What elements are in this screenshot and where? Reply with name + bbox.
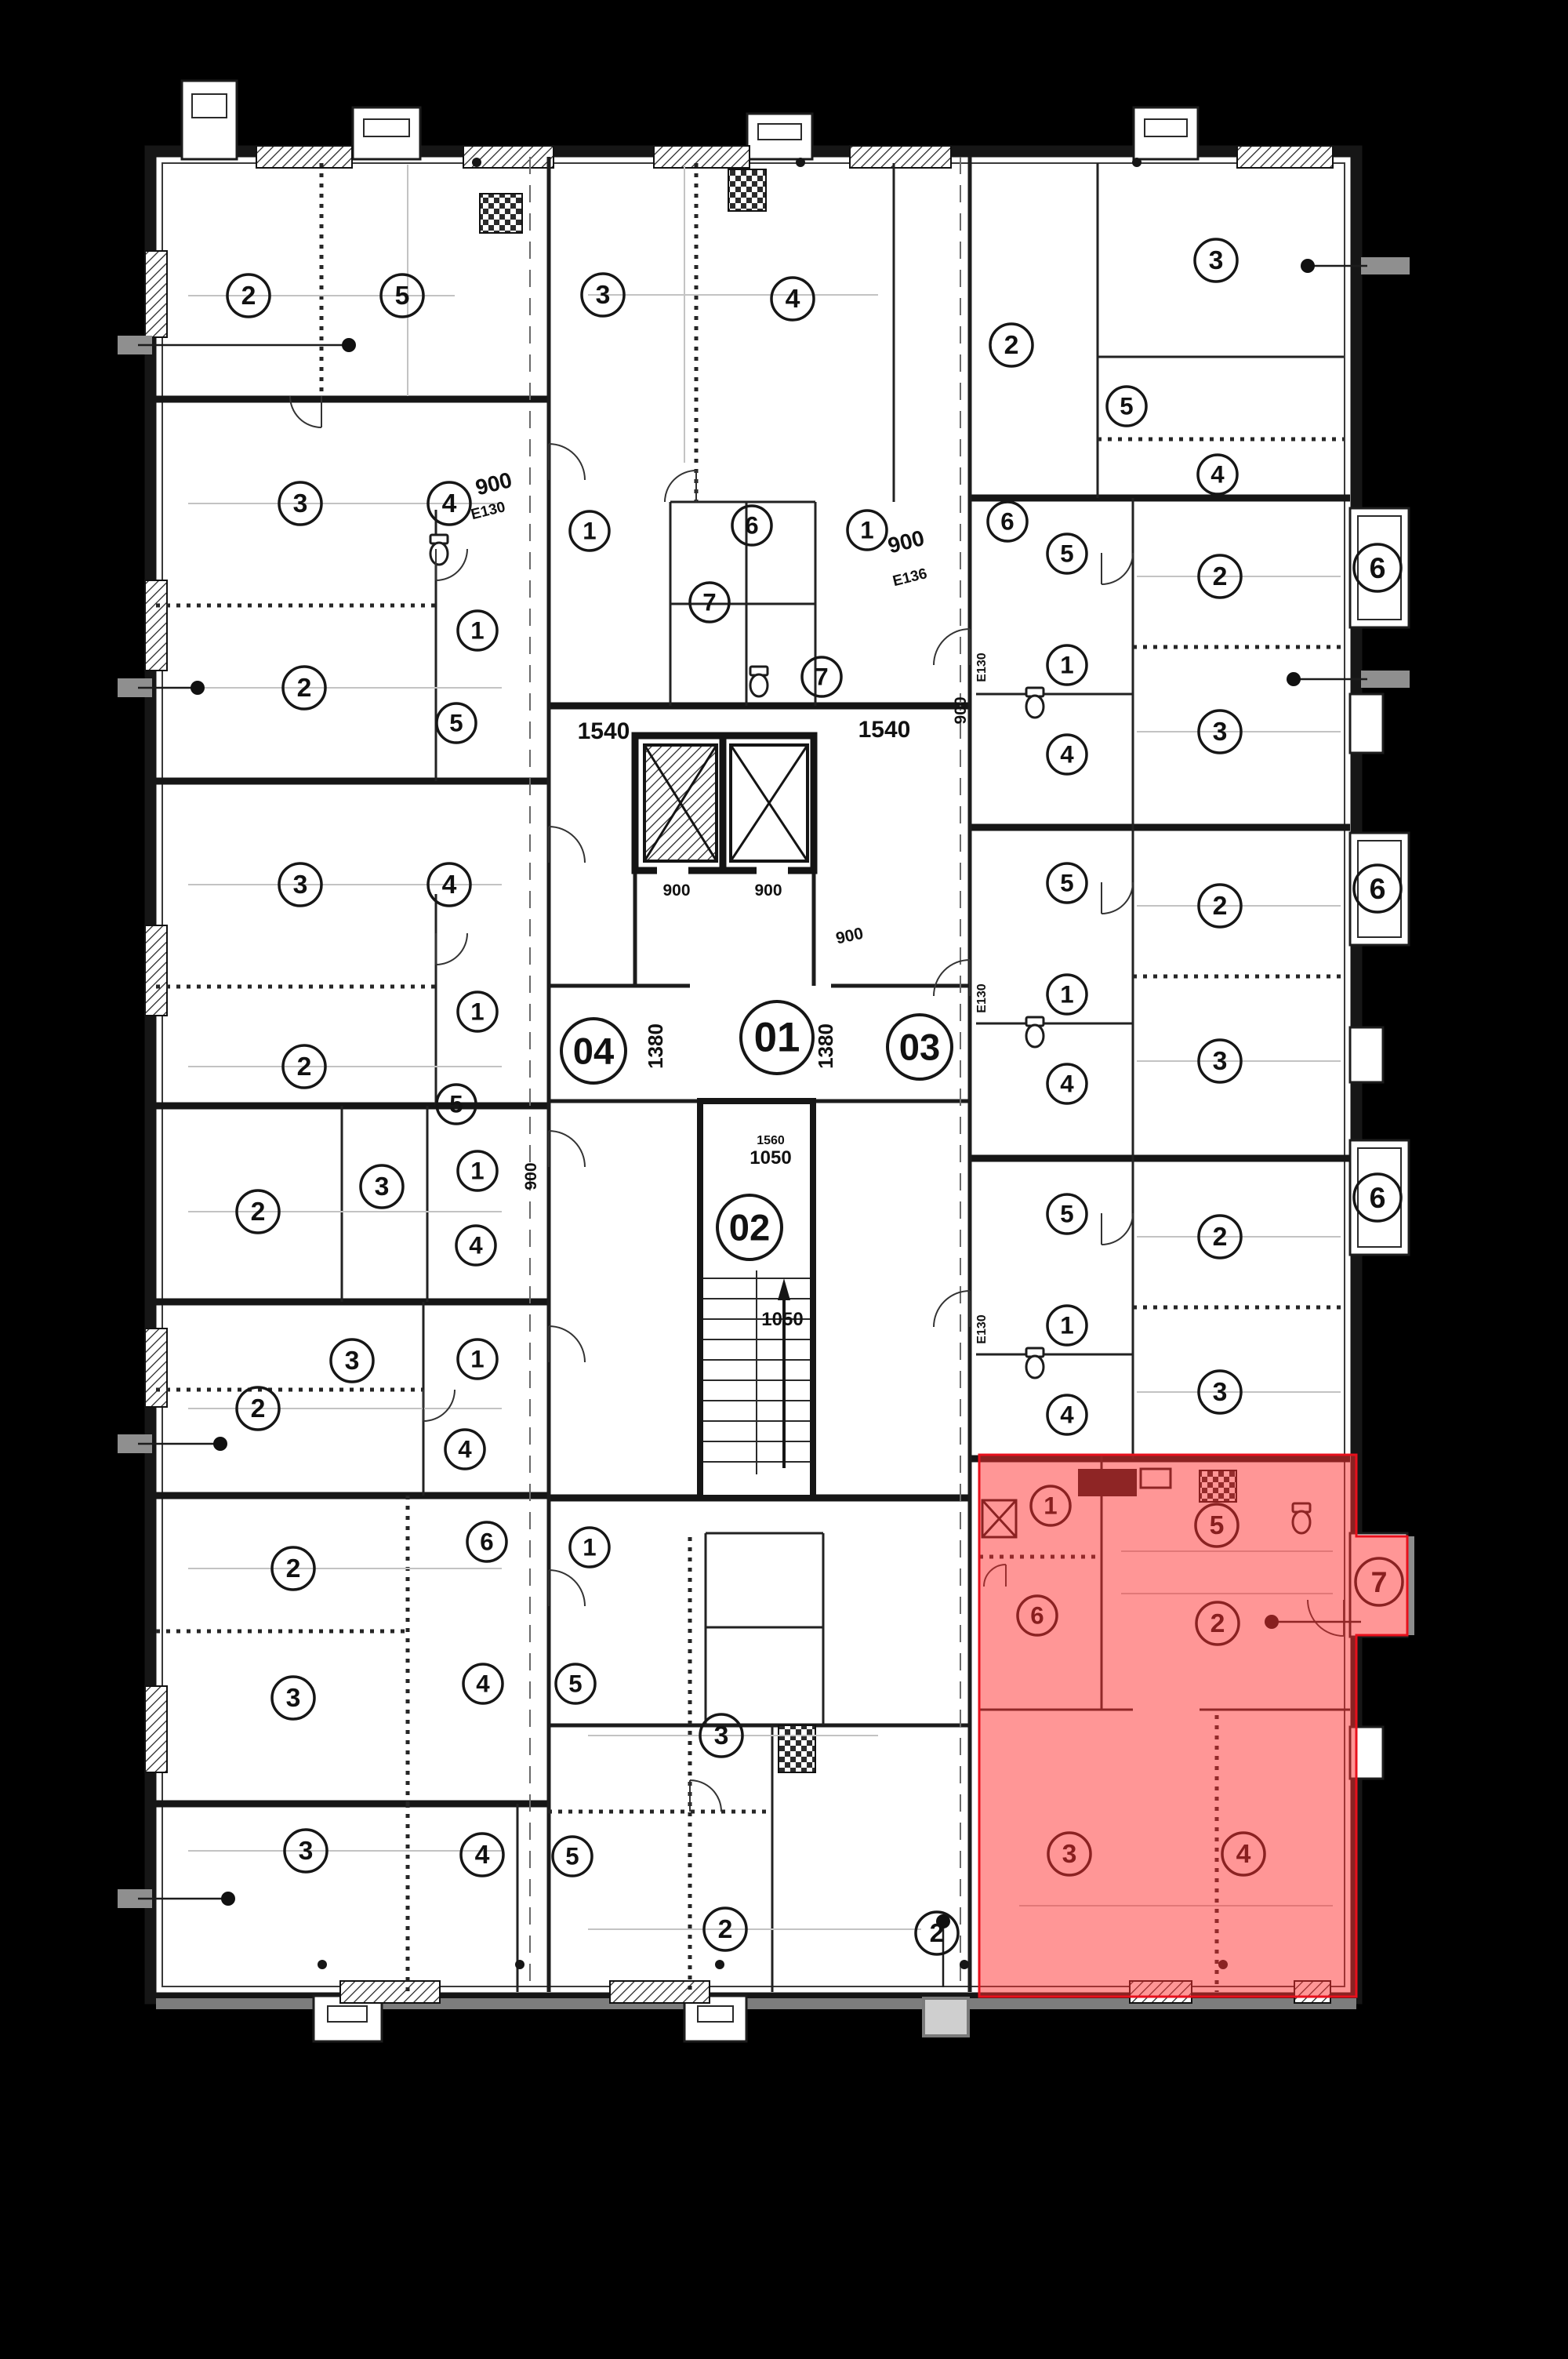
dimension-label: 900 (754, 881, 782, 900)
toilet-icon (1026, 1348, 1044, 1378)
svg-text:5: 5 (1060, 870, 1073, 897)
dimension-label: 1540 (858, 717, 911, 743)
svg-text:6: 6 (1000, 508, 1014, 536)
svg-text:6: 6 (1370, 1181, 1386, 1214)
dimension-label: E130 (975, 1314, 989, 1343)
svg-text:5: 5 (1060, 540, 1073, 568)
elevator-shaft-left (644, 745, 717, 861)
svg-text:1: 1 (860, 517, 873, 544)
svg-text:2: 2 (241, 281, 256, 311)
svg-text:1: 1 (583, 518, 596, 545)
svg-text:4: 4 (1060, 1401, 1074, 1429)
svg-text:2: 2 (251, 1394, 266, 1423)
dimension-label: 1540 (578, 718, 630, 744)
svg-text:5: 5 (395, 281, 410, 311)
svg-text:1: 1 (470, 1158, 484, 1185)
toilet-icon (1026, 688, 1044, 718)
toilet-icon (1026, 1017, 1044, 1047)
svg-text:01: 01 (754, 1015, 800, 1061)
svg-text:04: 04 (573, 1030, 614, 1072)
svg-text:4: 4 (458, 1436, 472, 1463)
svg-text:2: 2 (930, 1918, 945, 1948)
svg-text:7: 7 (702, 589, 716, 616)
svg-text:2: 2 (297, 1052, 312, 1081)
dimension-label: 1050 (761, 1309, 803, 1330)
svg-text:1: 1 (470, 617, 484, 645)
core-area-label: 04 (561, 1019, 626, 1083)
svg-text:6: 6 (480, 1528, 493, 1556)
vent-box (182, 81, 237, 159)
svg-text:2: 2 (1213, 891, 1228, 921)
svg-text:5: 5 (1120, 393, 1133, 420)
core-area-label: 01 (741, 1001, 813, 1074)
dimension-label: 1380 (814, 1023, 837, 1069)
svg-text:4: 4 (786, 284, 800, 314)
dimension-label: 900 (952, 696, 970, 724)
svg-text:2: 2 (1004, 330, 1019, 360)
svg-text:3: 3 (299, 1836, 314, 1866)
svg-text:3: 3 (1209, 245, 1224, 275)
svg-text:6: 6 (1370, 872, 1386, 905)
leader-dot (191, 681, 205, 695)
svg-text:1: 1 (583, 1534, 596, 1561)
svg-text:4: 4 (442, 489, 457, 518)
svg-text:7: 7 (815, 663, 828, 691)
elevator-core (635, 736, 814, 871)
svg-text:3: 3 (375, 1172, 390, 1201)
window-box (1350, 1027, 1383, 1082)
elevator-shaft-right (731, 745, 808, 861)
dimension-label: 1380 (644, 1023, 667, 1069)
core-area-label: 02 (717, 1195, 782, 1259)
svg-text:4: 4 (475, 1840, 490, 1870)
svg-text:4: 4 (1210, 461, 1225, 489)
vent-shaft (480, 194, 522, 233)
svg-text:5: 5 (449, 710, 463, 737)
dimension-label: E130 (975, 652, 989, 682)
svg-text:4: 4 (476, 1670, 490, 1698)
svg-text:2: 2 (251, 1197, 266, 1227)
balcony-slab (1134, 107, 1198, 159)
balcony-slab (353, 107, 420, 159)
svg-text:6: 6 (1370, 551, 1386, 584)
svg-text:2: 2 (1213, 562, 1228, 591)
svg-text:3: 3 (293, 870, 308, 900)
svg-text:3: 3 (1213, 1377, 1228, 1407)
window-box (1350, 694, 1383, 753)
svg-text:1: 1 (470, 998, 484, 1026)
svg-text:2: 2 (297, 673, 312, 703)
svg-text:1: 1 (1060, 1312, 1073, 1339)
highlighted-apartment[interactable] (979, 1455, 1407, 1997)
vent-shaft (728, 169, 766, 211)
svg-text:5: 5 (449, 1091, 463, 1118)
svg-text:6: 6 (745, 512, 758, 540)
svg-text:3: 3 (293, 489, 308, 518)
dimension-label: 900 (522, 1162, 540, 1190)
leader-dot (213, 1437, 227, 1451)
dimension-label: 1050 (750, 1147, 791, 1169)
dimension-label: 1560 (757, 1134, 785, 1147)
svg-text:1: 1 (1060, 981, 1073, 1009)
svg-text:02: 02 (729, 1207, 770, 1249)
svg-text:5: 5 (1060, 1201, 1073, 1228)
dimension-label: 900 (662, 881, 690, 900)
floor-plan-svg: 2534125341251324132462453343416717135222… (0, 0, 1568, 2359)
vent-shaft (779, 1725, 815, 1772)
leader-dot (1287, 672, 1301, 686)
dimension-label: E130 (975, 983, 989, 1012)
svg-text:4: 4 (1060, 1070, 1074, 1098)
svg-text:3: 3 (1213, 717, 1228, 747)
svg-text:3: 3 (596, 280, 611, 310)
svg-text:4: 4 (1060, 741, 1074, 769)
floor-plan-canvas: 2534125341251324132462453343416717135222… (0, 0, 1568, 2359)
svg-text:3: 3 (1213, 1046, 1228, 1076)
svg-text:3: 3 (345, 1346, 360, 1376)
svg-text:03: 03 (899, 1027, 940, 1068)
svg-text:2: 2 (718, 1914, 733, 1944)
svg-text:2: 2 (1213, 1222, 1228, 1252)
svg-text:2: 2 (286, 1554, 301, 1583)
core-area-label: 03 (887, 1015, 952, 1079)
svg-text:5: 5 (565, 1843, 579, 1870)
svg-text:4: 4 (469, 1232, 483, 1259)
toilet-icon (750, 667, 768, 696)
leader-dot (342, 338, 356, 352)
balcony-slab (747, 114, 812, 159)
leader-dot (221, 1892, 235, 1906)
svg-text:5: 5 (568, 1670, 582, 1698)
toilet-icon (430, 535, 448, 565)
svg-text:1: 1 (470, 1346, 484, 1373)
svg-text:4: 4 (442, 870, 457, 900)
svg-text:1: 1 (1060, 652, 1073, 679)
svg-text:3: 3 (714, 1721, 729, 1750)
leader-dot (1301, 259, 1315, 273)
svg-text:3: 3 (286, 1683, 301, 1713)
